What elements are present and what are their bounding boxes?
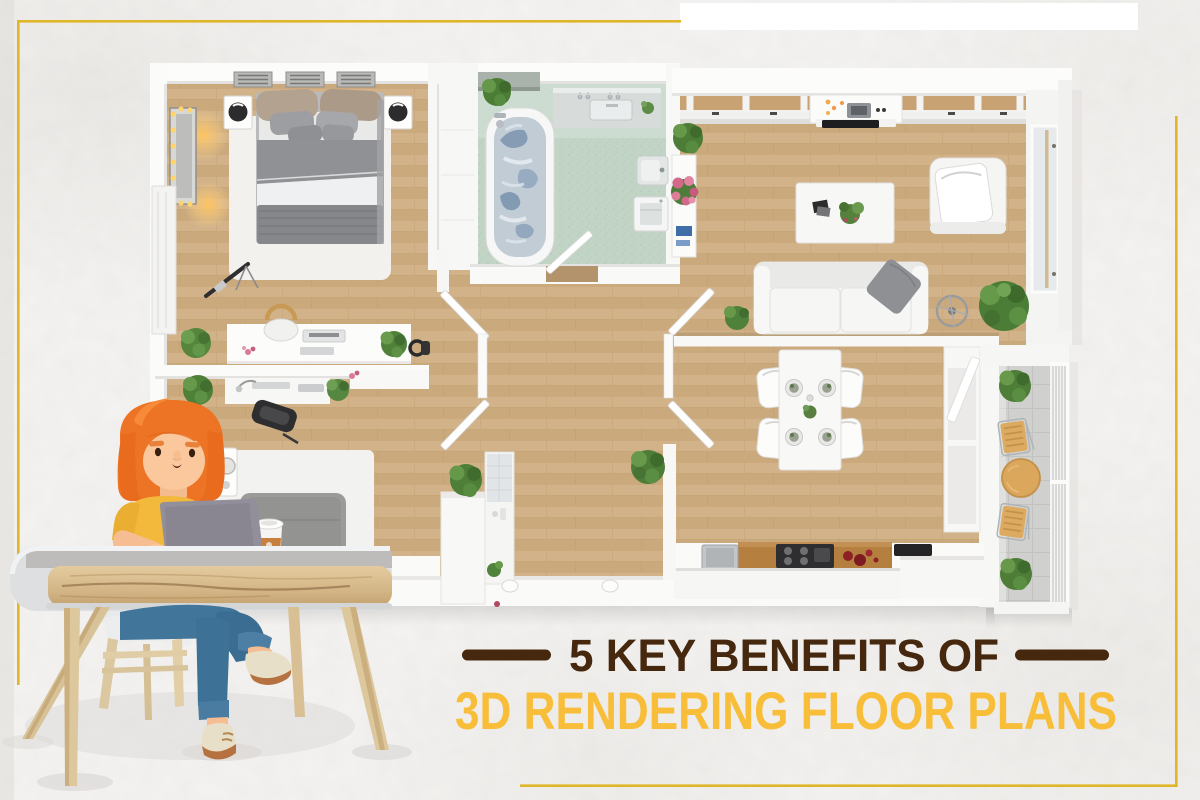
svg-text:3D RENDERING FLOOR PLANS: 3D RENDERING FLOOR PLANS <box>455 682 1117 741</box>
svg-text:5 KEY BENEFITS OF: 5 KEY BENEFITS OF <box>569 630 999 681</box>
